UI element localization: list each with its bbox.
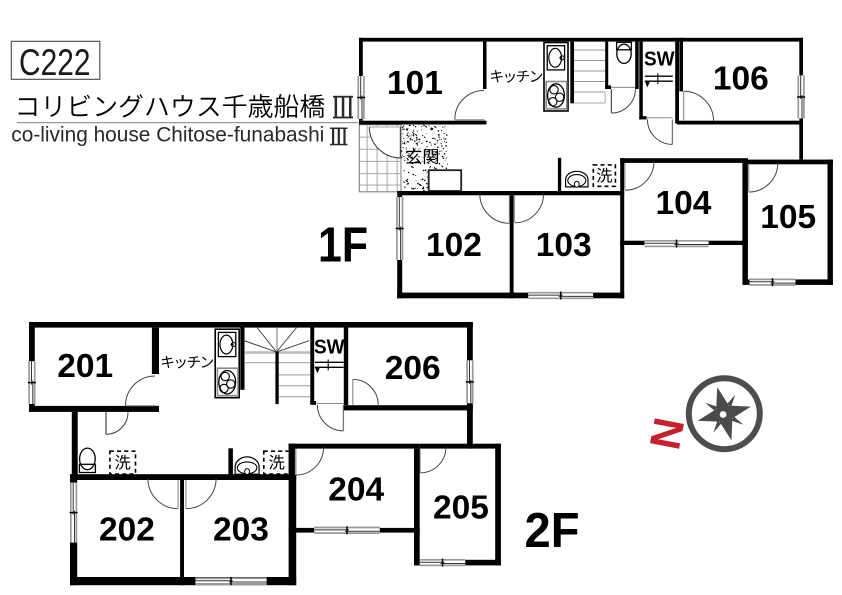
svg-text:co-living house Chitose-funaba: co-living house Chitose-funabashi xyxy=(11,124,324,147)
svg-text:1F: 1F xyxy=(318,217,368,272)
svg-text:SW: SW xyxy=(644,49,675,71)
svg-text:103: 103 xyxy=(536,227,592,264)
svg-text:105: 105 xyxy=(760,199,816,236)
svg-text:203: 203 xyxy=(213,511,269,548)
svg-text:2F: 2F xyxy=(525,503,580,558)
svg-text:106: 106 xyxy=(713,61,769,98)
svg-text:C222: C222 xyxy=(19,41,91,83)
svg-text:101: 101 xyxy=(387,65,443,102)
svg-text:SW: SW xyxy=(314,336,345,358)
svg-text:102: 102 xyxy=(426,227,482,264)
svg-text:205: 205 xyxy=(433,489,489,526)
svg-text:206: 206 xyxy=(385,350,441,387)
svg-text:104: 104 xyxy=(655,185,711,222)
svg-text:202: 202 xyxy=(99,511,155,548)
svg-text:204: 204 xyxy=(328,472,384,509)
svg-text:201: 201 xyxy=(57,348,113,385)
